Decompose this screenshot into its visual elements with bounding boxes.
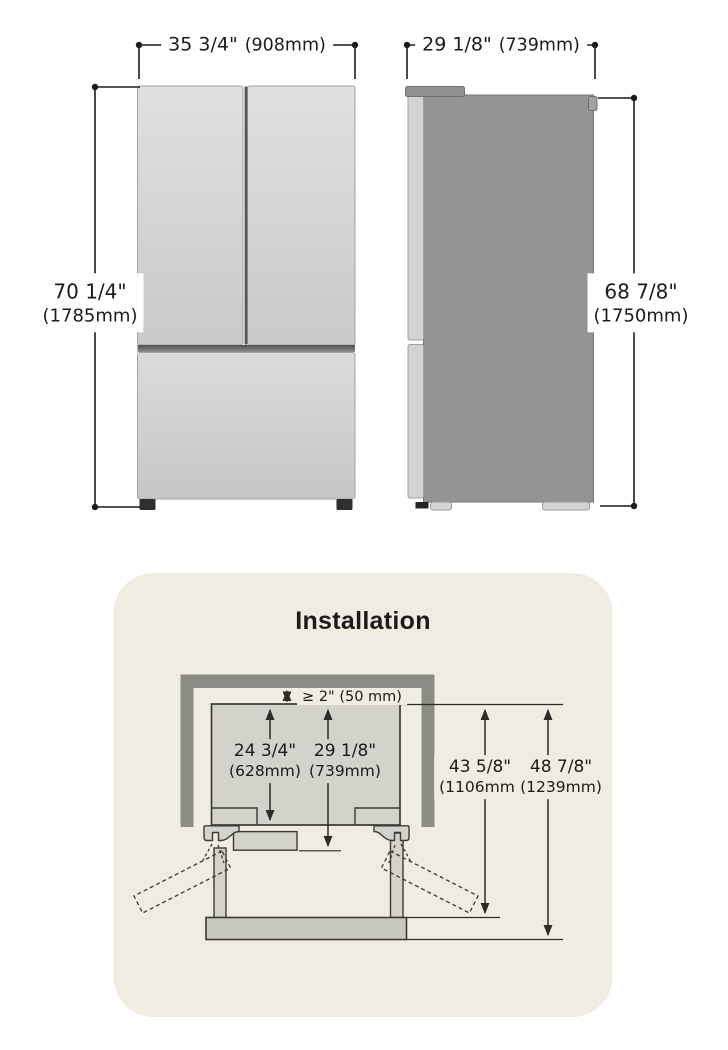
front-right-door [248,86,356,345]
dimension-dot [136,42,142,48]
side-height-inches: 68 7/8" [594,278,689,304]
open-depth-metric: (1106mm) [439,778,521,797]
front-width-inches: 35 3/4" [168,34,238,56]
fridge-front-view [138,86,356,510]
dimension-dot [631,503,637,509]
total-depth-label: 48 7/8" (1239mm) [515,755,607,799]
total-depth-inches: 48 7/8" [520,757,602,778]
front-left-door [138,86,244,345]
left-door-slab [234,832,298,851]
installation-title: Installation [295,605,431,638]
side-depth-inches: 29 1/8" [422,34,492,56]
cabinet-depth-inches: 24 3/4" [229,741,301,762]
side-top-hinge-cover [406,87,465,97]
front-height-inches: 70 1/4" [43,278,138,304]
front-right-foot [337,499,353,510]
door-depth-inches: 29 1/8" [309,741,381,762]
side-height-label: 68 7/8" (1750mm) [588,273,695,332]
door-depth-label: 29 1/8" (739mm) [304,739,386,783]
total-depth-metric: (1239mm) [520,778,602,797]
side-body [424,95,594,502]
side-depth-label: 29 1/8"(739mm) [415,32,587,59]
dimension-dot [631,95,637,101]
front-width-label: 35 3/4"(908mm) [161,32,333,59]
front-left-foot [140,499,156,510]
front-divider-band [138,345,356,352]
front-height-metric: (1785mm) [43,304,138,327]
side-front-roller [431,502,452,510]
dimension-dot [352,42,358,48]
spec-diagram-canvas [0,0,728,1050]
dimensions-spec-page: 35 3/4"(908mm) 29 1/8"(739mm) 70 1/4" (1… [0,0,728,1050]
open-depth-inches: 43 5/8" [439,757,521,778]
front-bottom-drawer [138,353,356,500]
cabinet-depth-label: 24 3/4" (628mm) [224,739,306,783]
fridge-side-view [406,87,598,511]
front-door-gap [245,87,248,345]
side-depth-metric: (739mm) [499,36,580,56]
front-width-metric: (908mm) [245,36,326,56]
side-front-foot [416,502,429,509]
cabinet-depth-metric: (628mm) [229,762,301,781]
top-clearance-label: ≥ 2" (50 mm) [297,689,407,705]
open-depth-label: 43 5/8" (1106mm) [434,755,526,799]
side-rear-hinge-tab [589,97,598,111]
dimension-dot [404,42,410,48]
door-depth-metric: (739mm) [309,762,381,781]
side-height-metric: (1750mm) [594,304,689,327]
side-lower-door-edge [408,345,424,499]
open-door-footprint-bar [206,918,407,940]
dimension-dot [92,84,98,90]
side-rear-roller [543,502,590,510]
dimension-dot [592,42,598,48]
side-upper-door-edge [408,88,424,340]
front-height-label: 70 1/4" (1785mm) [37,273,144,332]
dimension-dot [92,504,98,510]
left-door-open-90 [214,848,226,918]
